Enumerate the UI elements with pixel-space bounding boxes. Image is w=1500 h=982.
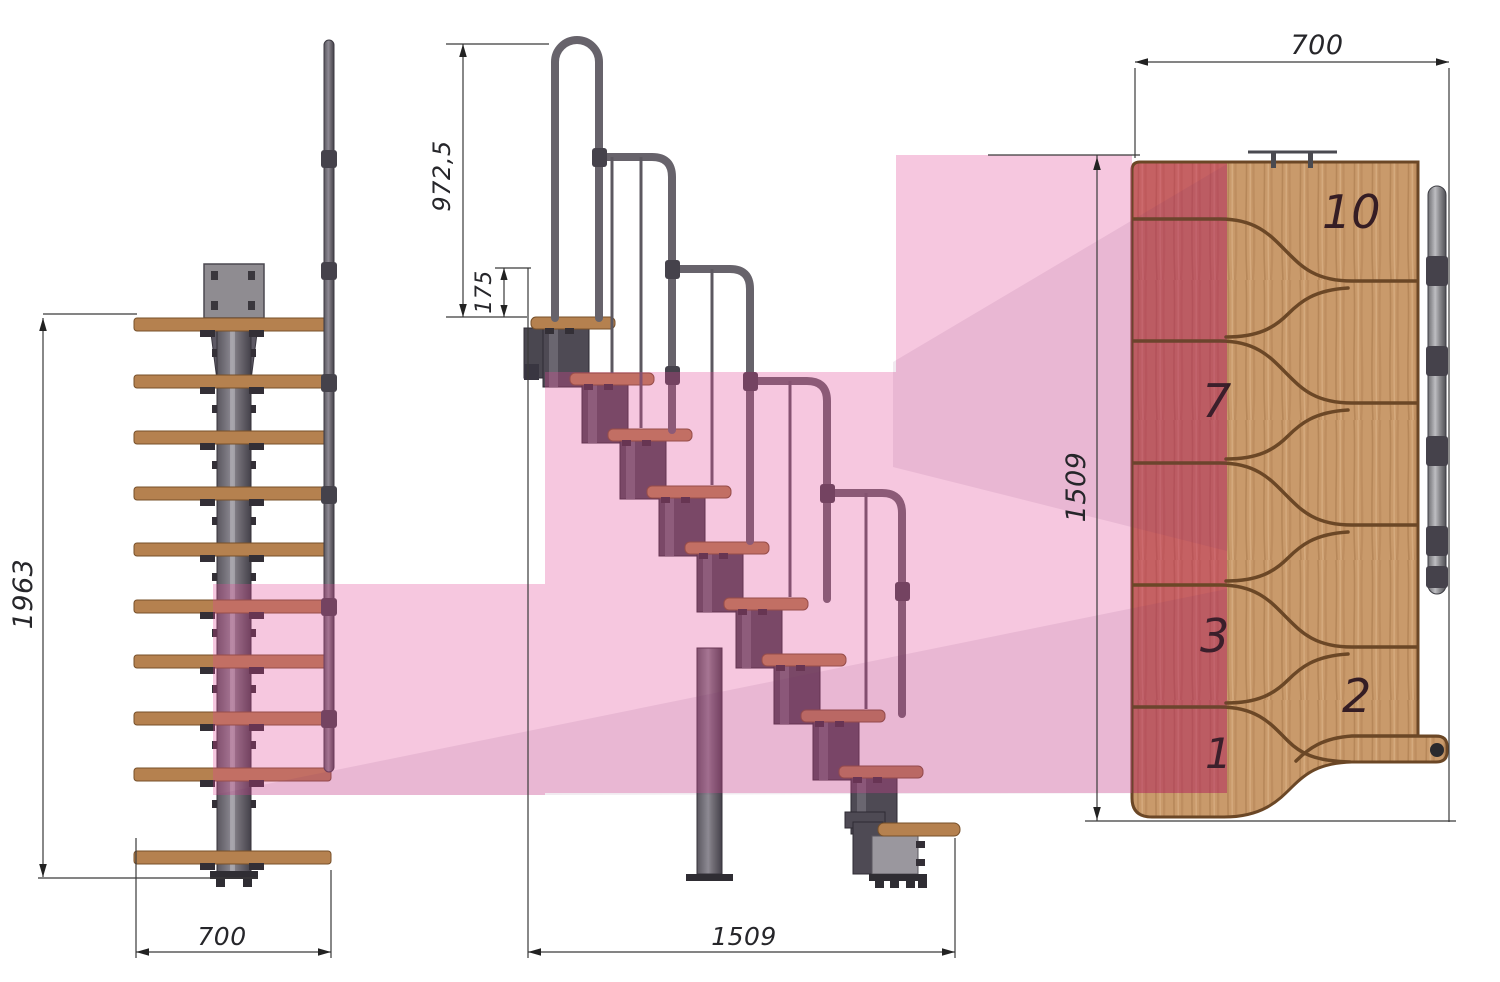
- step-number-2: 2: [1342, 669, 1371, 723]
- drawing-canvas: 10 7 3 2 1 1963 700: [0, 0, 1500, 982]
- top-run-label: 1509: [1061, 452, 1092, 523]
- front-height-label: 1963: [8, 559, 39, 630]
- top-width-label: 700: [1290, 30, 1343, 61]
- top-rise-label: 175: [472, 270, 497, 314]
- wall-bracket-front: [204, 264, 264, 318]
- rail-height-label: 972,5: [428, 140, 456, 211]
- dimension-top-rise: 175: [472, 268, 531, 317]
- step-number-10: 10: [1322, 185, 1381, 239]
- side-run-label: 1509: [711, 922, 777, 951]
- rail-loop: [555, 40, 599, 318]
- front-width-label: 700: [197, 922, 246, 951]
- post-bolt-top: [1430, 743, 1444, 757]
- staircase-drawing: 10 7 3 2 1 1963 700: [0, 0, 1500, 982]
- handrail-top: [1426, 186, 1448, 594]
